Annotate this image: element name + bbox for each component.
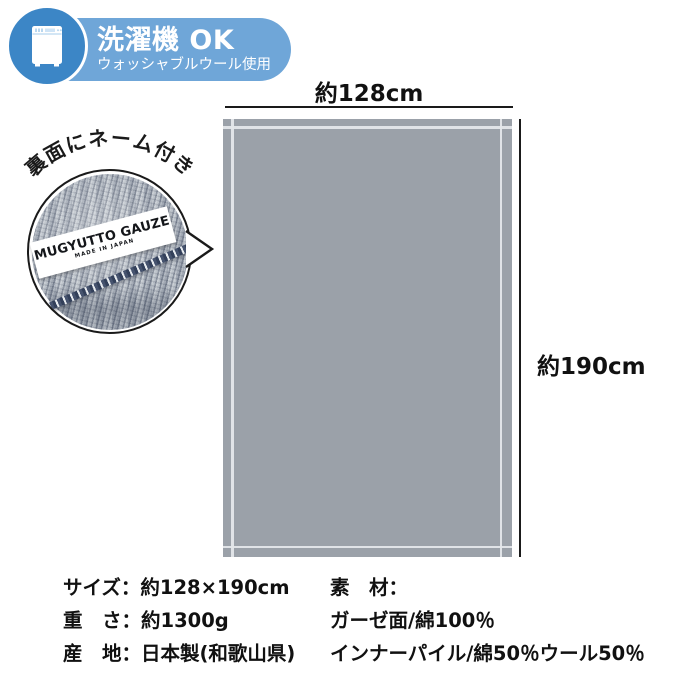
spec-row-material-gauze: ガーゼ面/綿100％ bbox=[330, 611, 645, 631]
callout-pointer-icon bbox=[180, 225, 220, 275]
spec-row-material: 素 材： bbox=[330, 578, 645, 598]
height-dimension-label: 約190cm bbox=[537, 347, 646, 381]
inset-caption-char: ネ bbox=[86, 127, 110, 151]
width-dimension-label: 約128cm bbox=[225, 74, 513, 108]
height-dimension-line bbox=[519, 119, 521, 557]
spec-list-right: 素 材： ガーゼ面/綿100％ インナーパイル/綿50％ウール50％ bbox=[330, 578, 645, 677]
hem-line-left bbox=[231, 119, 234, 557]
badge-title: 洗濯機 OK bbox=[97, 26, 291, 56]
fabric-circle: MUGYUTTO GAUZE MADE IN JAPAN bbox=[27, 169, 192, 334]
badge-subtitle: ウォッシャブルウール使用 bbox=[97, 56, 291, 74]
hem-line-right bbox=[500, 119, 503, 557]
hem-line-bottom bbox=[223, 546, 512, 549]
product-size-diagram: 洗濯機 OK ウォッシャブルウール使用 裏面にネーム付き bbox=[0, 0, 700, 700]
blanket bbox=[223, 119, 512, 557]
spec-row-weight: 重 さ：約1300g bbox=[63, 611, 295, 631]
hem-line-top bbox=[223, 126, 512, 129]
spec-list-left: サイズ：約128×190cm 重 さ：約1300g 産 地：日本製(和歌山県) bbox=[63, 578, 295, 677]
badge-icon-circle bbox=[6, 5, 88, 87]
spec-row-material-pile: インナーパイル/綿50％ウール50％ bbox=[330, 644, 645, 664]
washing-machine-icon bbox=[23, 22, 71, 70]
spec-row-size: サイズ：約128×190cm bbox=[63, 578, 295, 598]
spec-row-origin: 産 地：日本製(和歌山県) bbox=[63, 644, 295, 664]
